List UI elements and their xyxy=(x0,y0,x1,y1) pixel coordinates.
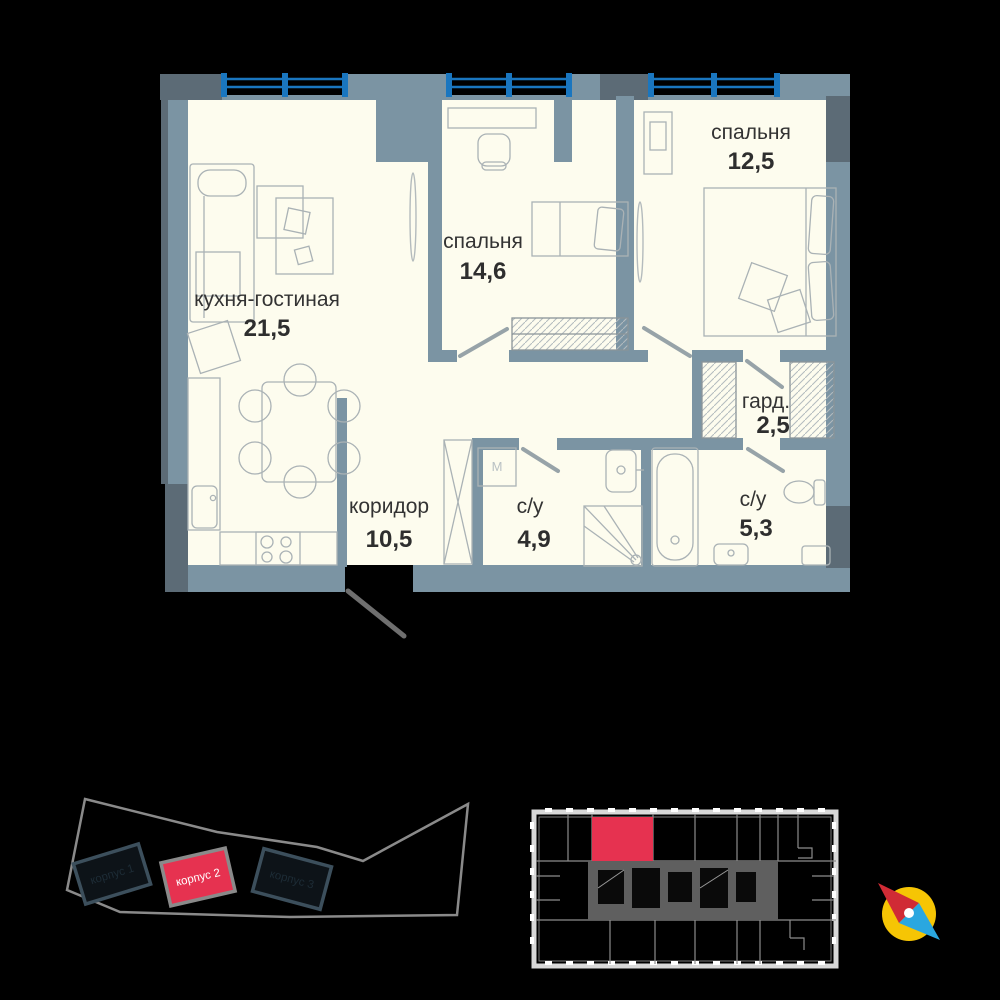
site-plan: корпус 1 корпус 2 корпус 3 xyxy=(67,799,468,917)
compass-pivot xyxy=(904,908,914,918)
window-openings xyxy=(222,74,780,95)
screenshot-canvas: М кухня-гостиная 21,5 спальня 14,6 спаль… xyxy=(0,0,1000,1000)
room-area-wardrobe: 2,5 xyxy=(756,412,789,439)
plan-graphic: М кухня-гостиная 21,5 спальня 14,6 спаль… xyxy=(0,0,1000,1000)
room-label-bedroom2: спальня xyxy=(711,121,791,144)
room-label-wardrobe: гард. xyxy=(742,390,790,413)
compass-icon xyxy=(878,883,940,941)
building-korpus-1[interactable]: корпус 1 xyxy=(73,844,150,904)
key-plan xyxy=(532,810,836,966)
room-label-bath2: с/у xyxy=(740,488,767,511)
room-label-bedroom1: спальня xyxy=(443,230,523,253)
room-area-corridor: 10,5 xyxy=(366,526,413,553)
room-area-bedroom1: 14,6 xyxy=(460,258,507,285)
key-plan-highlight-unit[interactable] xyxy=(592,817,653,861)
room-area-bath2: 5,3 xyxy=(739,515,772,542)
building-korpus-3[interactable]: корпус 3 xyxy=(252,849,331,910)
key-plan-core xyxy=(588,861,778,920)
washer-label: М xyxy=(492,459,503,474)
room-area-bath1: 4,9 xyxy=(517,526,550,553)
room-area-bedroom2: 12,5 xyxy=(728,148,775,175)
room-label-corridor: коридор xyxy=(349,495,429,518)
building-korpus-2[interactable]: корпус 2 xyxy=(161,848,235,906)
entrance-opening xyxy=(345,565,413,592)
room-label-bath1: с/у xyxy=(517,495,544,518)
entrance-door xyxy=(348,591,404,636)
floor-plan: М кухня-гостиная 21,5 спальня 14,6 спаль… xyxy=(160,73,850,636)
room-area-kitchen: 21,5 xyxy=(244,315,291,342)
wardrobe-bedroom xyxy=(512,318,628,350)
room-label-kitchen: кухня-гостиная xyxy=(194,288,340,311)
